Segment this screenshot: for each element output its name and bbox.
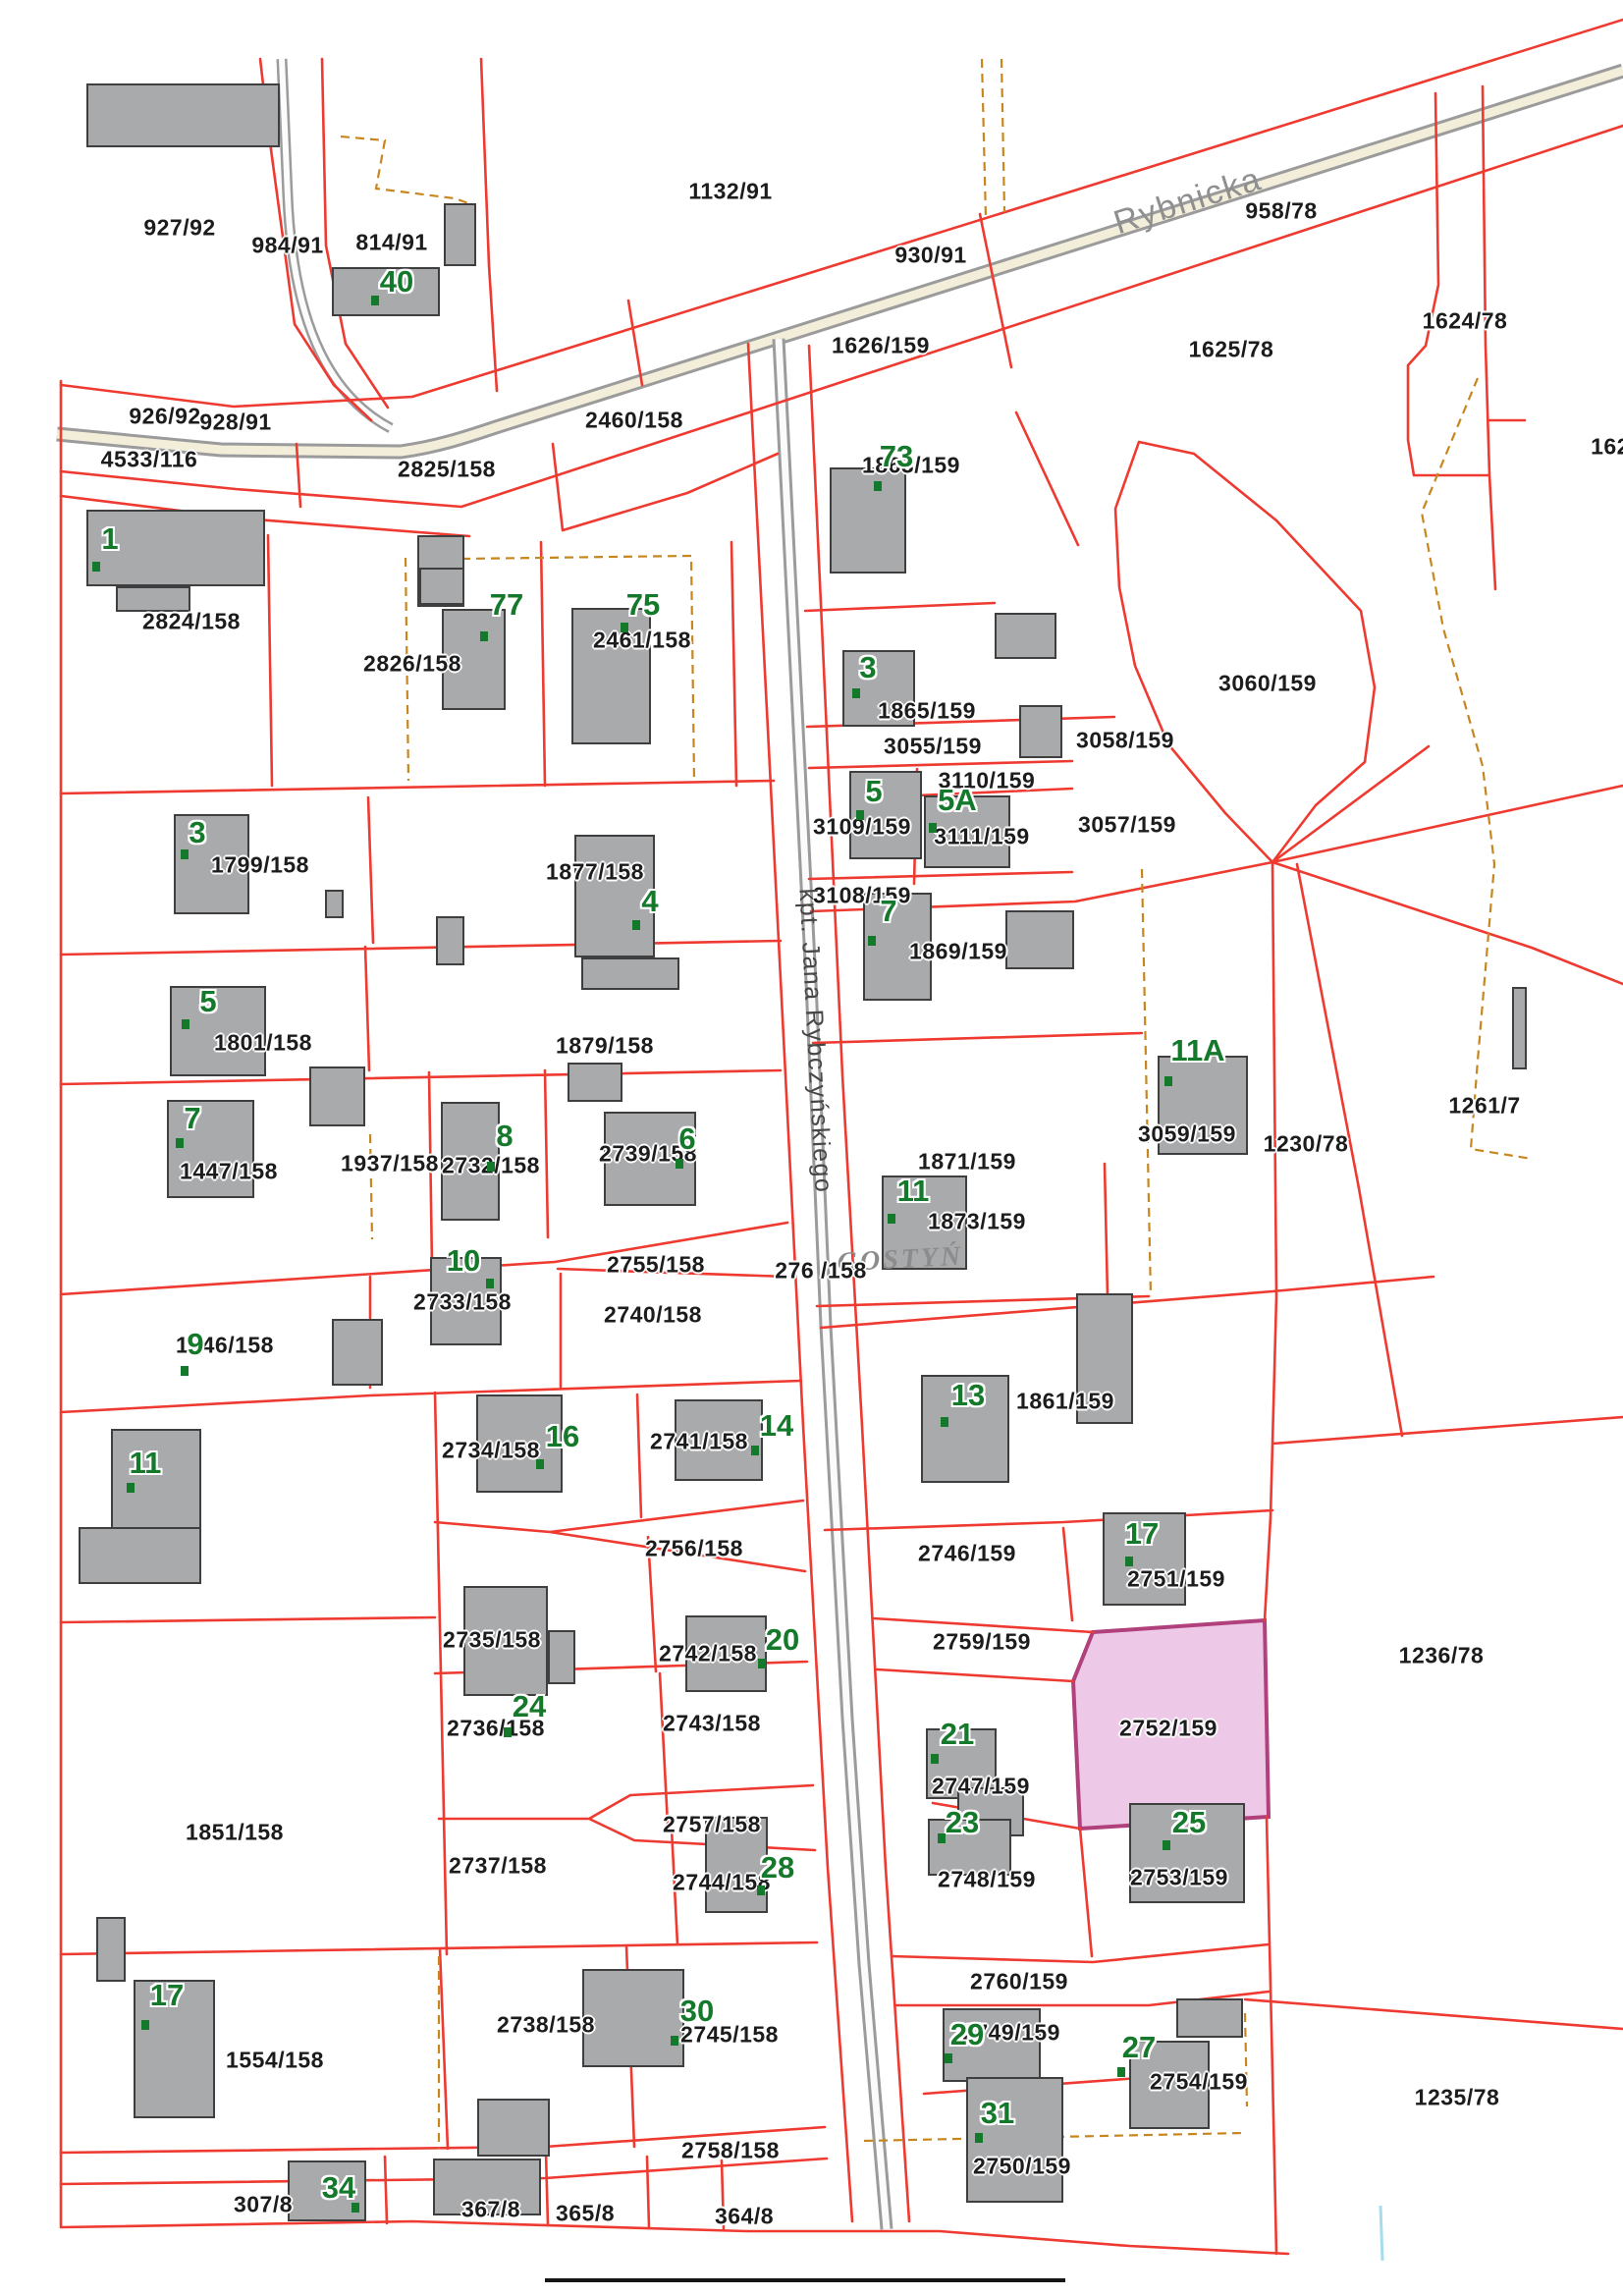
parcel-label: 276 /158 — [775, 1258, 867, 1285]
parcel-label: 2755/158 — [607, 1252, 705, 1279]
address-number: 7 — [880, 894, 896, 929]
parcel-label: 1801/158 — [214, 1030, 312, 1057]
parcel-label: 1879/158 — [556, 1033, 654, 1060]
address-number: 23 — [946, 1805, 979, 1840]
address-point-marker — [1117, 2067, 1125, 2077]
parcel-label: 1871/159 — [918, 1149, 1016, 1175]
building — [830, 467, 906, 574]
address-point-marker — [486, 1279, 494, 1288]
address-number: 73 — [880, 439, 913, 474]
parcel-label: 3060/159 — [1218, 671, 1317, 697]
parcel-label: 1869/159 — [909, 939, 1007, 965]
building — [325, 890, 344, 918]
address-point-marker — [181, 849, 189, 859]
parcel-label: 927/92 — [143, 215, 215, 242]
parcel-label: 2756/158 — [645, 1536, 743, 1562]
address-number: 9 — [187, 1327, 203, 1362]
parcel-label: 1865/159 — [878, 698, 976, 725]
address-point-marker — [941, 1417, 948, 1427]
parcel-label: 1799/158 — [211, 852, 309, 879]
address-number: 30 — [680, 1994, 714, 2029]
address-point-marker — [621, 623, 628, 632]
parcel-label: 2733/158 — [413, 1289, 512, 1316]
address-point-marker — [176, 1138, 184, 1148]
address-number: 17 — [150, 1978, 184, 2013]
parcel-label: 2740/158 — [604, 1302, 702, 1329]
address-number: 13 — [951, 1378, 985, 1413]
address-point-marker — [852, 688, 860, 698]
parcel-label: 2826/158 — [363, 651, 461, 678]
parcel-label: 2752/159 — [1119, 1716, 1217, 1742]
address-number: 34 — [322, 2170, 355, 2206]
address-number: 10 — [447, 1243, 480, 1279]
address-point-marker — [181, 1366, 189, 1376]
parcel-label: 2757/158 — [663, 1812, 761, 1838]
parcel-label: 2461/158 — [593, 628, 691, 654]
address-number: 28 — [761, 1850, 794, 1886]
parcel-label: 958/78 — [1245, 198, 1317, 225]
address-point-marker — [888, 1214, 895, 1224]
parcel-label: 2746/159 — [918, 1541, 1016, 1567]
parcel-label: 1625/78 — [1189, 337, 1274, 363]
parcel-label: 365/8 — [556, 2201, 615, 2227]
address-point-marker — [856, 810, 864, 820]
address-number: 31 — [981, 2096, 1014, 2131]
building — [1019, 705, 1062, 758]
parcel-label: 1851/158 — [186, 1820, 284, 1846]
address-number: 27 — [1122, 2030, 1156, 2065]
parcel-label: 2735/158 — [443, 1627, 541, 1654]
building — [1512, 987, 1527, 1069]
parcel-label: 2734/158 — [442, 1438, 540, 1464]
address-point-marker — [945, 2053, 952, 2063]
building — [581, 957, 679, 990]
parcel-label: 2824/158 — [142, 609, 241, 635]
parcel-label: 2754/159 — [1150, 2069, 1248, 2096]
scan-blue-artifact — [1380, 2206, 1382, 2261]
address-point-marker — [371, 296, 379, 305]
building — [1005, 910, 1074, 969]
parcel-label: 2748/159 — [938, 1867, 1036, 1893]
address-number: 40 — [380, 264, 413, 300]
parcel-label: 928/91 — [199, 410, 271, 436]
building — [96, 1917, 126, 1982]
address-point-marker — [632, 920, 640, 930]
building — [568, 1063, 622, 1102]
address-point-marker — [141, 2020, 149, 2030]
address-point-marker — [92, 562, 100, 572]
address-number: 1 — [101, 521, 118, 557]
parcel-label: 2758/158 — [681, 2138, 780, 2164]
address-point-marker — [1125, 1557, 1133, 1566]
parcel-label: 1624/78 — [1423, 308, 1508, 335]
building — [995, 613, 1056, 659]
parcel-label: 1877/158 — [546, 859, 644, 886]
address-point-marker — [931, 1754, 939, 1764]
address-point-marker — [127, 1483, 135, 1493]
parcel-label: 3055/159 — [884, 734, 982, 760]
address-number: 16 — [546, 1419, 579, 1454]
parcel-label: 2759/159 — [933, 1629, 1031, 1656]
parcel-label: 2760/159 — [970, 1969, 1068, 1995]
parcel-label: 930/91 — [894, 243, 966, 269]
address-point-marker — [676, 1159, 683, 1169]
parcel-label: 3057/159 — [1078, 812, 1176, 839]
building — [79, 1527, 201, 1584]
address-number: 11 — [897, 1174, 930, 1209]
parcel-label: 367/8 — [461, 2197, 520, 2223]
building — [444, 203, 476, 266]
parcel-label: 4533/116 — [101, 447, 198, 473]
parcel-label: 2743/158 — [663, 1711, 761, 1737]
parcel-label: 1235/78 — [1415, 2085, 1500, 2111]
address-point-marker — [975, 2133, 983, 2143]
building — [86, 83, 280, 147]
address-point-marker — [1163, 1840, 1170, 1850]
parcel-label: 2744/158 — [673, 1870, 771, 1896]
parcel-label: 1873/159 — [928, 1209, 1026, 1235]
parcel-label: 364/8 — [715, 2204, 774, 2230]
address-number: 21 — [941, 1717, 974, 1752]
parcel-label: 984/91 — [251, 233, 323, 259]
building — [332, 1319, 383, 1386]
address-number: 3 — [859, 650, 876, 685]
address-number: 20 — [766, 1622, 799, 1658]
address-number: 29 — [950, 2017, 984, 2052]
parcel-label: 1261/7 — [1448, 1093, 1520, 1120]
parcel-label: 926/92 — [129, 404, 200, 430]
address-number: 5A — [938, 783, 977, 818]
address-number: 24 — [513, 1689, 546, 1724]
address-point-marker — [352, 2203, 359, 2213]
address-point-marker — [751, 1446, 759, 1455]
address-point-marker — [504, 1727, 512, 1737]
parcel-label: 1236/78 — [1399, 1643, 1485, 1669]
address-number: 11A — [1170, 1033, 1224, 1068]
address-point-marker — [1164, 1076, 1172, 1086]
address-number: 8 — [496, 1119, 513, 1154]
parcel-label: 2460/158 — [585, 408, 683, 434]
parcel-label: 2738/158 — [497, 2012, 595, 2039]
address-number: 77 — [490, 587, 523, 623]
address-number: 6 — [678, 1121, 695, 1157]
address-number: 14 — [760, 1408, 793, 1444]
parcel-label: 2741/158 — [650, 1429, 748, 1455]
address-number: 3 — [189, 815, 205, 850]
building — [309, 1066, 365, 1126]
parcel-label: 3111/159 — [934, 824, 1029, 850]
building — [1176, 1998, 1243, 2038]
building — [436, 916, 464, 965]
address-point-marker — [487, 1162, 495, 1172]
parcel-label: 2737/158 — [449, 1853, 547, 1880]
address-point-marker — [758, 1659, 766, 1668]
building — [477, 2099, 550, 2157]
parcel-label: 1447/158 — [180, 1159, 278, 1185]
parcel-label: 1937/158 — [341, 1151, 439, 1177]
address-number: 11 — [130, 1446, 162, 1481]
parcel-label: 2747/159 — [932, 1774, 1030, 1800]
parcel-label: 307/8 — [234, 2192, 293, 2218]
address-point-marker — [868, 936, 876, 946]
building — [548, 1630, 575, 1684]
address-point-marker — [757, 1886, 765, 1895]
address-number: 5 — [865, 774, 882, 809]
parcel-label: 1132/91 — [688, 179, 772, 205]
address-number: 5 — [199, 984, 216, 1019]
address-number: 17 — [1125, 1516, 1159, 1552]
address-point-marker — [536, 1459, 544, 1469]
parcel-label: 1554/158 — [226, 2048, 324, 2074]
address-point-marker — [938, 1833, 946, 1843]
parcel-label: 1230/78 — [1264, 1131, 1349, 1158]
address-number: 7 — [184, 1101, 200, 1136]
parcel-label: 2825/158 — [398, 457, 496, 483]
parcel-label: 162 — [1591, 434, 1623, 461]
parcel-label: 2751/159 — [1127, 1566, 1225, 1593]
address-point-marker — [929, 823, 937, 833]
address-number: 25 — [1172, 1805, 1206, 1840]
parcel-label: 814/91 — [355, 230, 427, 256]
building — [419, 568, 464, 605]
address-number: 75 — [626, 587, 660, 623]
address-point-marker — [874, 481, 882, 491]
parcel-label: 1626/159 — [832, 333, 930, 359]
parcel-label: 1861/159 — [1016, 1389, 1114, 1415]
address-point-marker — [480, 631, 488, 641]
parcel-label: 3058/159 — [1076, 728, 1174, 754]
address-point-marker — [182, 1019, 189, 1029]
cadastral-map[interactable]: Rybnicka kpt. Jana Rybczyńskiego GOSTYŃ … — [0, 0, 1623, 2296]
address-number: 4 — [641, 884, 658, 919]
parcel-label: 3059/159 — [1138, 1121, 1236, 1148]
building — [582, 1969, 684, 2067]
parcel-label: 2750/159 — [973, 2154, 1071, 2180]
parcel-label: 2742/158 — [659, 1641, 757, 1667]
address-point-marker — [671, 2036, 678, 2046]
parcel-label: 2753/159 — [1130, 1865, 1228, 1891]
